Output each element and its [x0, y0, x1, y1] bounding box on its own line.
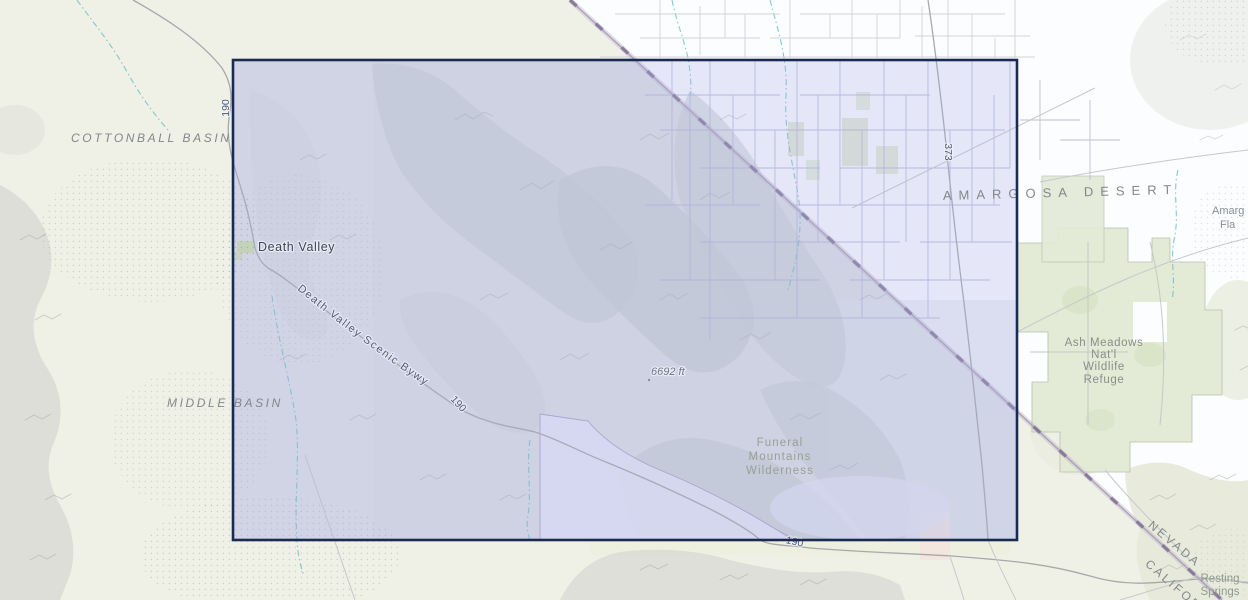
label-route-190-north: 190: [220, 99, 232, 117]
label-route-373: 373: [942, 143, 954, 161]
label-elevation-6692ft: 6692 ft: [651, 366, 686, 378]
selection-rectangle[interactable]: [233, 60, 1017, 540]
label-resting-springs-2: Springs: [1201, 586, 1240, 598]
map-svg[interactable]: COTTONBALL BASIN MIDDLE BASIN Death Vall…: [0, 0, 1248, 600]
label-ash-meadows-2: Nat'l: [1091, 349, 1117, 361]
label-amargosa-flat-1: Amarg: [1212, 205, 1244, 217]
map-canvas[interactable]: COTTONBALL BASIN MIDDLE BASIN Death Vall…: [0, 0, 1248, 600]
elevation-point: [648, 379, 650, 381]
label-funeral-wilderness-1: Funeral: [757, 437, 804, 449]
label-ash-meadows-4: Refuge: [1084, 374, 1125, 386]
label-ash-meadows-3: Wildlife: [1083, 361, 1125, 373]
label-ash-meadows-1: Ash Meadows: [1065, 337, 1144, 349]
label-middle-basin: MIDDLE BASIN: [167, 396, 283, 410]
label-death-valley: Death Valley: [258, 240, 335, 254]
label-funeral-wilderness-2: Mountains: [749, 451, 812, 463]
label-cottonball-basin: COTTONBALL BASIN: [71, 131, 232, 145]
label-resting-springs-1: Resting: [1201, 573, 1240, 585]
label-amargosa-flat-2: Fla: [1220, 219, 1236, 231]
label-funeral-wilderness-3: Wilderness: [746, 465, 814, 477]
